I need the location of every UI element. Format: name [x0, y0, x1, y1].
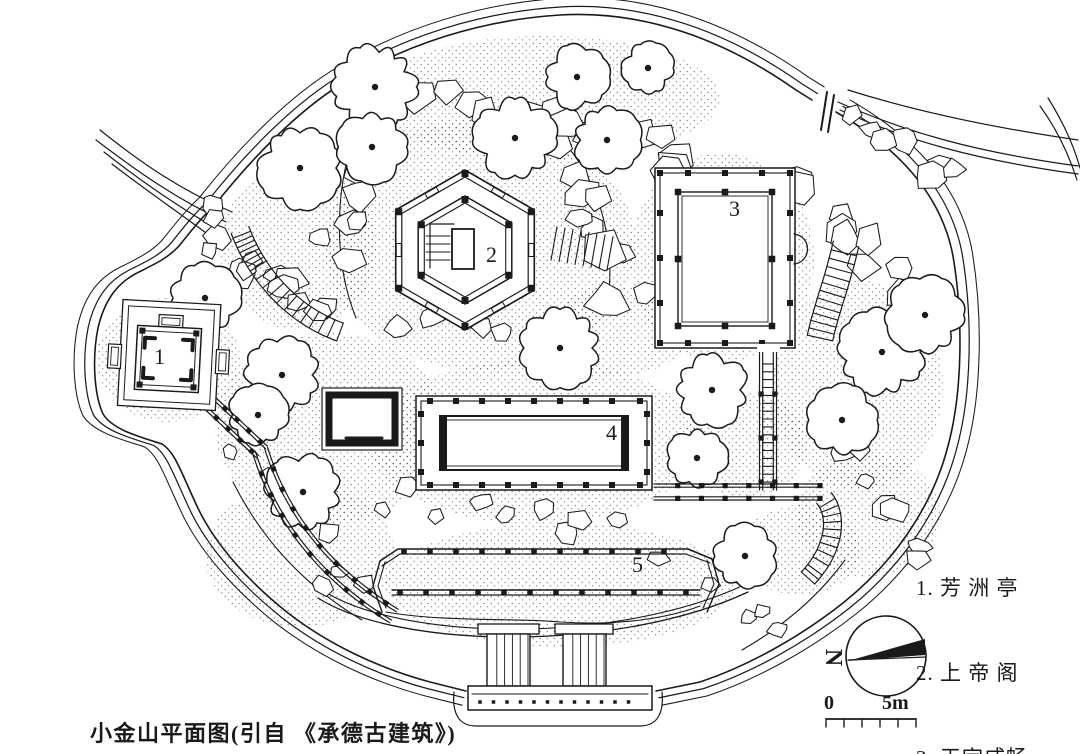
- west-gable: [440, 416, 447, 470]
- column-mark: [600, 700, 604, 704]
- legend: 1. 芳 洲 亭 2. 上 帝 阁 3. 天宇咸畅 4. 镜水云岑 5. 门 廊: [916, 522, 1028, 754]
- tree-center-dot: [742, 553, 748, 559]
- rock: [886, 257, 912, 280]
- column-mark: [462, 196, 469, 203]
- column-mark: [427, 482, 433, 488]
- column-mark: [139, 327, 145, 333]
- tree-center-dot: [645, 65, 651, 71]
- column-mark: [462, 297, 469, 304]
- column-mark: [794, 496, 799, 501]
- rock: [741, 609, 756, 623]
- column-mark: [573, 700, 577, 704]
- column-mark: [657, 300, 663, 306]
- wall-opening: [529, 244, 534, 257]
- column-mark: [401, 549, 407, 555]
- column-mark: [479, 549, 485, 555]
- small-black-structure: [322, 388, 402, 450]
- column-mark: [817, 496, 822, 501]
- column-mark: [586, 700, 590, 704]
- column-mark: [557, 482, 563, 488]
- column-mark: [675, 496, 680, 501]
- column-mark: [657, 255, 663, 261]
- column-mark: [657, 590, 663, 596]
- north-letter: N: [819, 649, 846, 666]
- column-mark: [661, 549, 667, 555]
- column-mark: [675, 256, 682, 263]
- column-mark: [769, 323, 776, 330]
- column-mark: [579, 590, 585, 596]
- column-mark: [631, 590, 637, 596]
- plan-marker-1: 1: [154, 346, 165, 368]
- column-mark: [637, 482, 643, 488]
- column-mark: [583, 398, 589, 404]
- scale-end-label: 5m: [882, 692, 909, 715]
- column-mark: [657, 210, 663, 216]
- plan-linework: [828, 95, 834, 132]
- column-mark: [453, 549, 459, 555]
- column-mark: [531, 482, 537, 488]
- column-mark: [722, 340, 728, 346]
- plan-marker-5: 5: [632, 554, 643, 576]
- tree-center-dot: [922, 312, 928, 318]
- column-mark: [637, 398, 643, 404]
- column-mark: [479, 482, 485, 488]
- column-mark: [531, 549, 537, 555]
- column-mark: [397, 590, 403, 596]
- column-mark: [453, 398, 459, 404]
- tree-center-dot: [574, 74, 580, 80]
- building-1-group: [105, 299, 231, 411]
- tree-center-dot: [202, 295, 208, 301]
- column-mark: [787, 255, 793, 261]
- rock: [766, 623, 787, 638]
- tree-center-dot: [694, 455, 700, 461]
- column-mark: [505, 221, 512, 228]
- column-mark: [505, 549, 511, 555]
- column-mark: [418, 411, 424, 417]
- column-mark: [475, 590, 481, 596]
- plan-marker-2: 2: [486, 244, 497, 266]
- column-mark: [722, 189, 729, 196]
- column-mark: [675, 323, 682, 330]
- column-mark: [644, 469, 650, 475]
- rock: [755, 605, 770, 618]
- column-mark: [609, 482, 615, 488]
- plan-linework: [825, 275, 850, 282]
- column-mark: [492, 700, 496, 704]
- column-mark: [427, 549, 433, 555]
- column-mark: [546, 700, 550, 704]
- tree-center-dot: [709, 387, 715, 393]
- column-mark: [657, 170, 663, 176]
- column-mark: [787, 300, 793, 306]
- column-mark: [675, 189, 682, 196]
- column-mark: [722, 170, 728, 176]
- wall-opening: [396, 244, 401, 257]
- column-mark: [769, 256, 776, 263]
- column-mark: [505, 398, 511, 404]
- column-mark: [427, 398, 433, 404]
- column-mark: [769, 189, 776, 196]
- plan-caption: 小金山平面图(引自 《承德古建筑》): [90, 716, 456, 748]
- column-mark: [527, 590, 533, 596]
- tree-center-dot: [604, 137, 610, 143]
- rock: [856, 223, 881, 256]
- stair-landing: [478, 624, 539, 634]
- site-plan-figure: 1 2 3 4 5 1. 芳 洲 亭 2. 上 帝 阁 3. 天宇咸畅 4. 镜…: [0, 0, 1080, 754]
- stair-landing: [555, 624, 613, 634]
- pavilion-wall: [134, 325, 201, 392]
- column-mark: [746, 496, 751, 501]
- column-mark: [685, 340, 691, 346]
- column-mark: [644, 440, 650, 446]
- hall-wall: [440, 416, 628, 470]
- rock: [202, 243, 217, 259]
- column-mark: [193, 330, 199, 336]
- legend-item: 1. 芳 洲 亭: [916, 572, 1028, 602]
- column-mark: [505, 272, 512, 279]
- plan-linework: [112, 164, 218, 242]
- plan-linework: [821, 92, 827, 130]
- column-mark: [136, 381, 142, 387]
- tree-center-dot: [879, 349, 885, 355]
- column-mark: [759, 435, 764, 440]
- column-mark: [675, 483, 680, 488]
- column-mark: [609, 398, 615, 404]
- gate-gap: [757, 344, 780, 352]
- column-mark: [723, 483, 728, 488]
- dock-stairs: [563, 634, 606, 686]
- tree-center-dot: [557, 345, 563, 351]
- dock-stairs: [487, 634, 530, 686]
- column-mark: [479, 398, 485, 404]
- tree-center-dot: [512, 135, 518, 141]
- column-mark: [453, 482, 459, 488]
- column-mark: [395, 285, 402, 292]
- column-mark: [817, 483, 822, 488]
- column-mark: [683, 590, 689, 596]
- tree-center-dot: [300, 489, 306, 495]
- column-mark: [644, 411, 650, 417]
- column-mark: [418, 440, 424, 446]
- tree-center-dot: [372, 84, 378, 90]
- column-mark: [449, 590, 455, 596]
- column-mark: [722, 323, 729, 330]
- column-mark: [787, 170, 793, 176]
- column-mark: [794, 483, 799, 488]
- column-mark: [190, 384, 196, 390]
- column-mark: [685, 170, 691, 176]
- plan-linework: [827, 267, 852, 274]
- tree-center-dot: [369, 144, 375, 150]
- tree-center-dot: [255, 412, 261, 418]
- column-mark: [418, 272, 425, 279]
- north-compass-icon: [846, 616, 926, 696]
- east-gable: [621, 416, 628, 470]
- column-mark: [501, 590, 507, 596]
- tree-center-dot: [279, 372, 285, 378]
- plan-marker-4: 4: [606, 422, 617, 444]
- column-mark: [627, 700, 631, 704]
- column-mark: [557, 549, 563, 555]
- column-mark: [528, 285, 535, 292]
- column-mark: [772, 435, 777, 440]
- column-mark: [583, 549, 589, 555]
- legend-item: 3. 天宇咸畅: [916, 742, 1028, 754]
- pier-deck: [468, 686, 652, 710]
- building-1-fangzhou-pavilion: [105, 299, 231, 411]
- column-mark: [770, 496, 775, 501]
- scale-bar: [826, 719, 916, 727]
- column-mark: [519, 700, 523, 704]
- column-mark: [657, 340, 663, 346]
- column-mark: [746, 483, 751, 488]
- column-mark: [583, 482, 589, 488]
- tree-center-dot: [297, 165, 303, 171]
- column-mark: [699, 483, 704, 488]
- column-mark: [759, 170, 765, 176]
- legend-item: 2. 上 帝 阁: [916, 657, 1028, 687]
- column-mark: [418, 221, 425, 228]
- column-mark: [395, 208, 402, 215]
- column-mark: [505, 700, 509, 704]
- rock: [428, 509, 444, 525]
- column-mark: [699, 496, 704, 501]
- column-mark: [418, 469, 424, 475]
- column-mark: [528, 208, 535, 215]
- column-mark: [723, 496, 728, 501]
- plan-linework: [1048, 98, 1080, 168]
- column-mark: [462, 323, 469, 330]
- column-mark: [423, 590, 429, 596]
- column-mark: [557, 398, 563, 404]
- column-mark: [787, 340, 793, 346]
- column-mark: [605, 590, 611, 596]
- column-mark: [478, 700, 482, 704]
- column-mark: [531, 398, 537, 404]
- column-mark: [559, 700, 563, 704]
- rock: [847, 254, 881, 281]
- column-mark: [505, 482, 511, 488]
- tree-center-dot: [839, 417, 845, 423]
- column-mark: [532, 700, 536, 704]
- column-mark: [553, 590, 559, 596]
- column-mark: [609, 549, 615, 555]
- column-mark: [462, 170, 469, 177]
- column-mark: [787, 210, 793, 216]
- column-mark: [613, 700, 617, 704]
- plan-marker-3: 3: [729, 198, 740, 220]
- scale-start-label: 0: [824, 692, 834, 715]
